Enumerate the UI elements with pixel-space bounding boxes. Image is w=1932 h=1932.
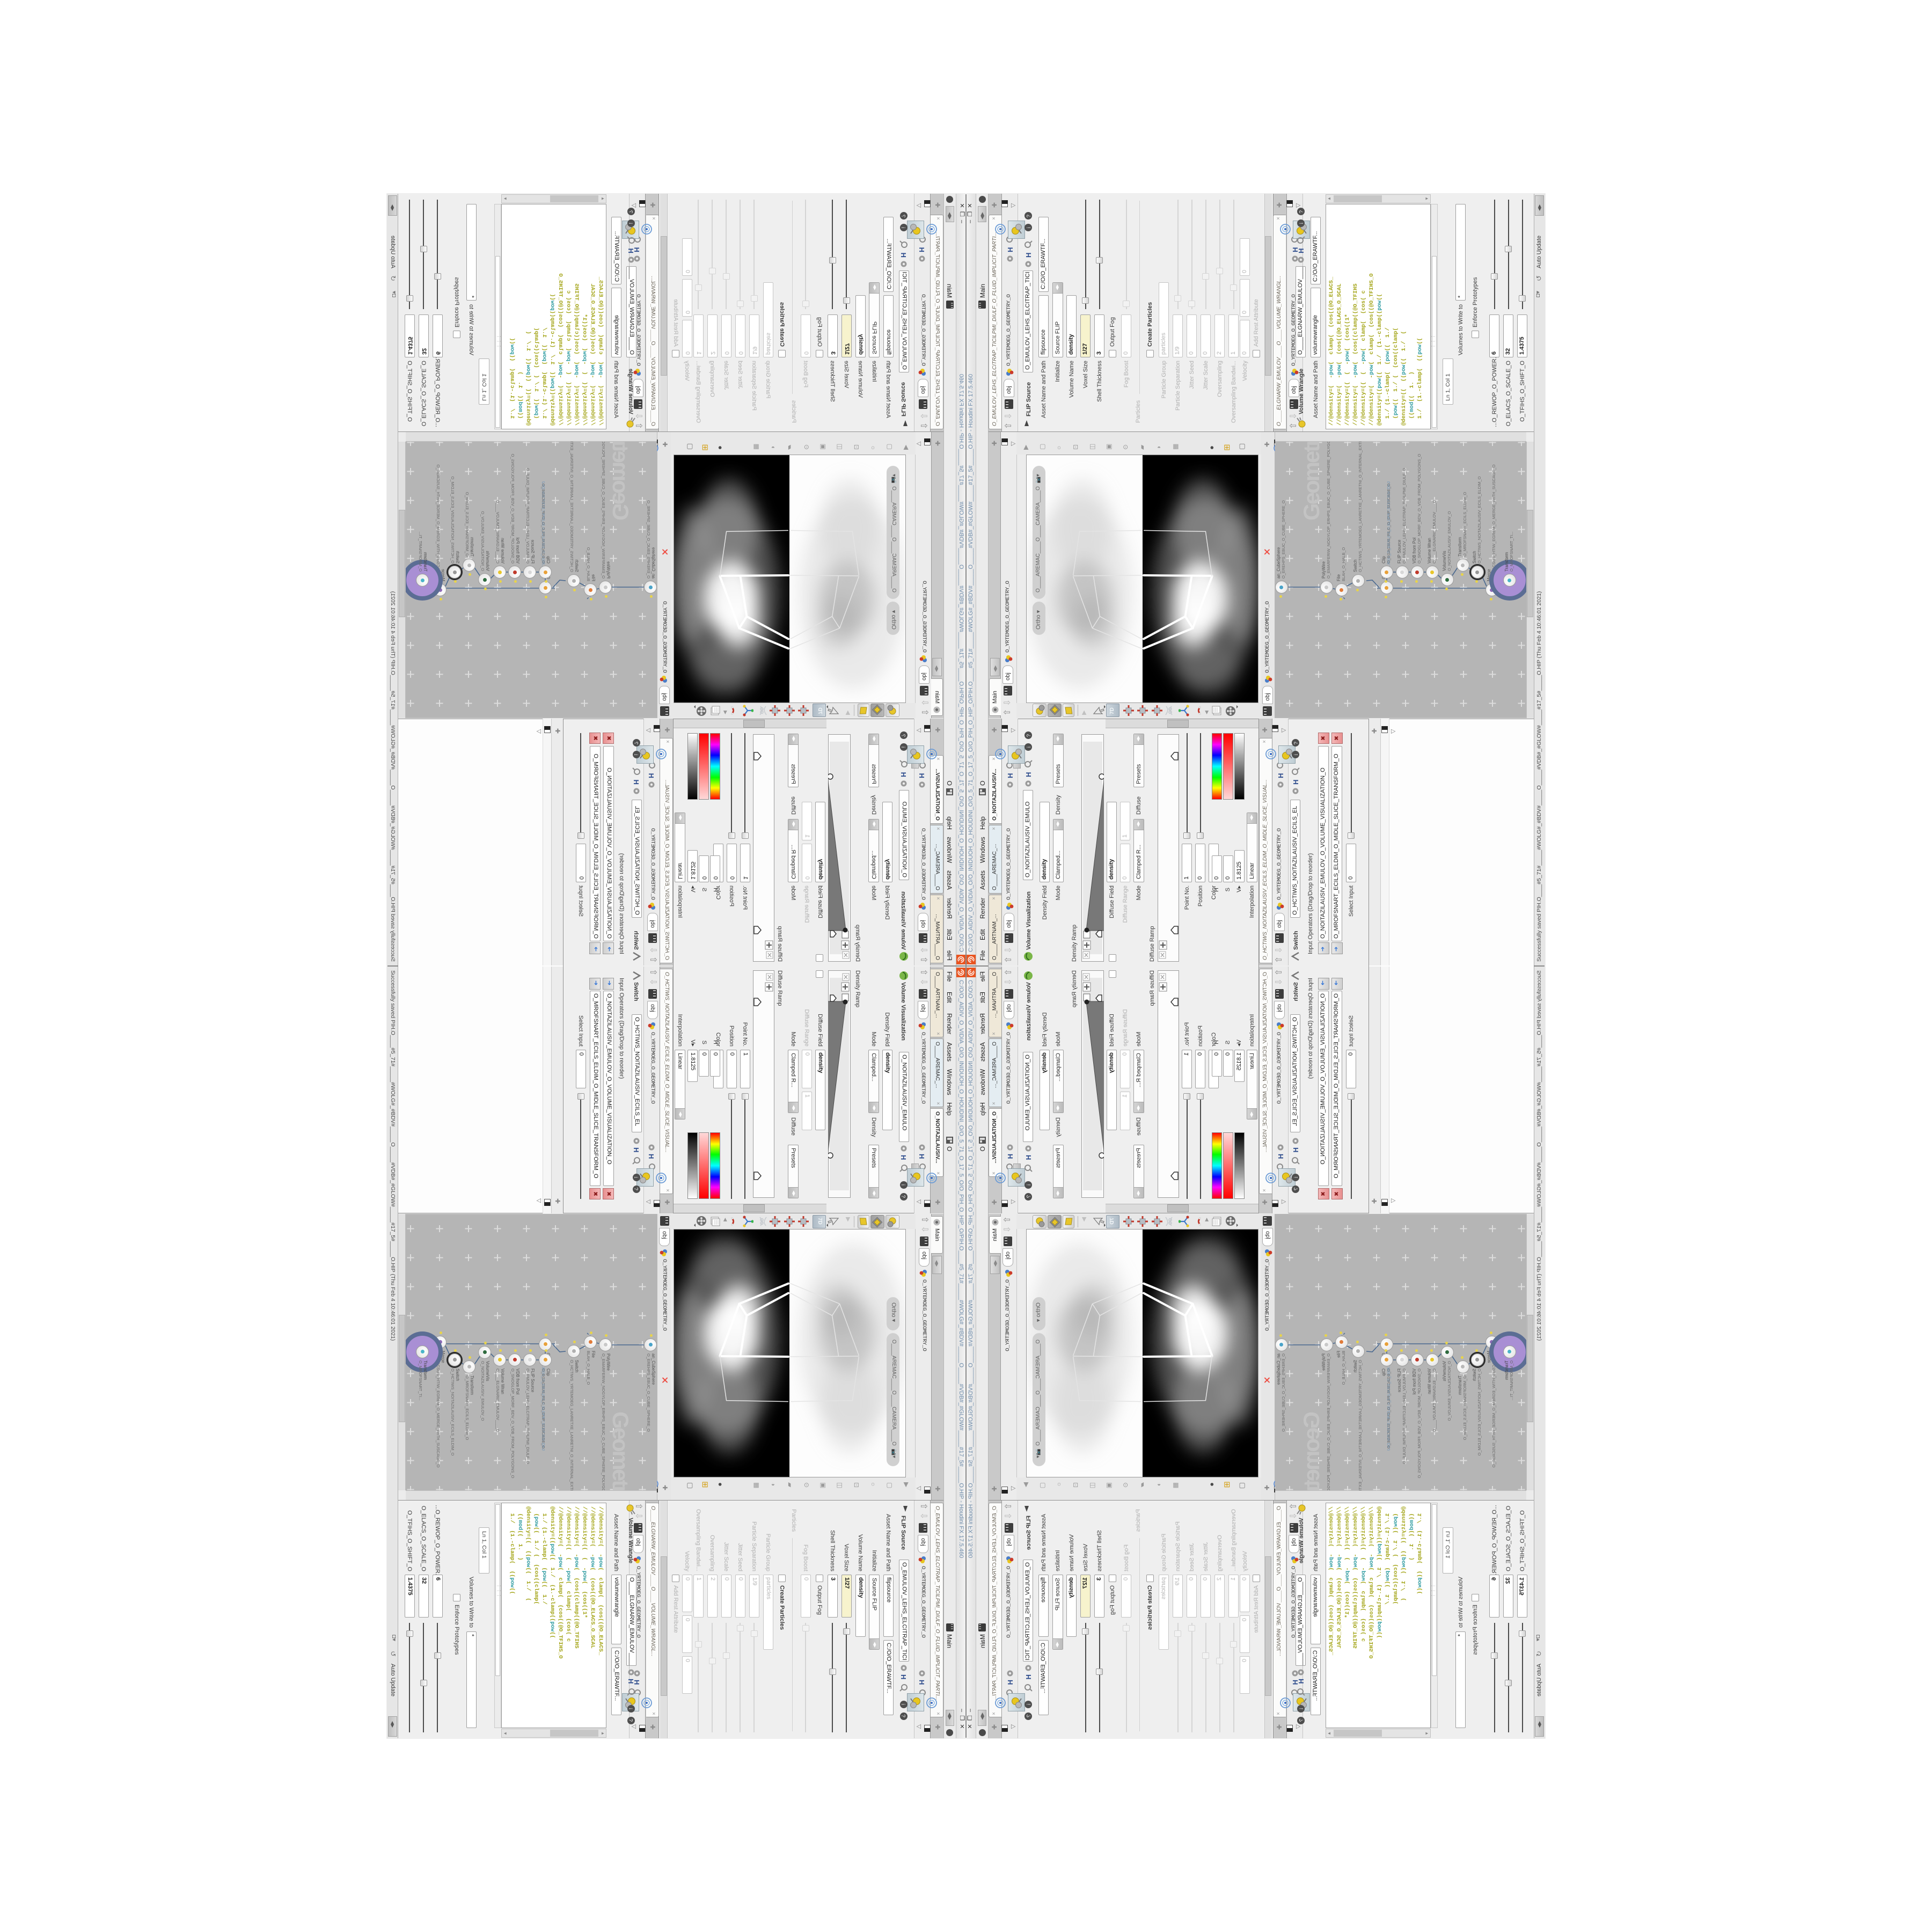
svg-text:i: i: [1026, 227, 1032, 229]
svg-text:H: H: [1024, 1674, 1033, 1679]
svg-text:H: H: [918, 247, 926, 252]
svg-text:i: i: [900, 1184, 906, 1186]
svg-text:i: i: [627, 223, 633, 224]
svg-text:H: H: [899, 253, 908, 258]
svg-text:?: ?: [1026, 734, 1032, 737]
svg-text:H: H: [918, 1154, 926, 1159]
svg-text:H: H: [1297, 1679, 1305, 1684]
svg-text:?: ?: [1299, 1719, 1305, 1722]
svg-text:Geometry: Geometry: [608, 442, 633, 521]
svg-text:?: ?: [1293, 1188, 1299, 1191]
svg-text:H: H: [627, 248, 635, 253]
svg-text:?: ?: [900, 215, 906, 218]
svg-text:?: ?: [627, 210, 633, 214]
svg-text:i: i: [900, 747, 906, 748]
svg-text:?: ?: [900, 734, 906, 737]
svg-text:Geometry: Geometry: [608, 1411, 633, 1490]
svg-text:H: H: [1006, 773, 1014, 778]
svg-text:?: ?: [633, 1188, 639, 1191]
svg-text:H: H: [647, 1154, 655, 1159]
svg-text:H: H: [632, 1147, 640, 1152]
svg-text:H: H: [918, 1680, 926, 1685]
svg-text:i: i: [633, 1177, 639, 1179]
svg-text:H: H: [899, 1155, 908, 1160]
svg-text:H: H: [1297, 248, 1305, 253]
svg-text:H: H: [1277, 1154, 1285, 1159]
svg-text:i: i: [1026, 1704, 1032, 1706]
svg-text:Geometry: Geometry: [1299, 1411, 1324, 1490]
svg-text:?: ?: [633, 742, 639, 745]
svg-text:i: i: [1293, 754, 1299, 756]
svg-text:?: ?: [1026, 215, 1032, 218]
svg-text:H: H: [1277, 773, 1285, 778]
svg-text:H: H: [1024, 772, 1033, 777]
svg-text:Geometry: Geometry: [1299, 442, 1324, 521]
svg-text:H: H: [899, 772, 908, 777]
svg-text:H: H: [1006, 1154, 1014, 1159]
svg-text:?: ?: [1293, 742, 1299, 745]
svg-text:H: H: [1006, 1680, 1014, 1685]
svg-text:i: i: [1293, 1177, 1299, 1179]
svg-text:?: ?: [900, 1715, 906, 1718]
svg-text:H: H: [1024, 253, 1033, 258]
svg-text:?: ?: [900, 1195, 906, 1198]
svg-text:i: i: [1299, 223, 1305, 224]
svg-text:H: H: [632, 780, 640, 785]
svg-text:H: H: [1292, 780, 1300, 785]
svg-text:?: ?: [1026, 1195, 1032, 1198]
svg-text:H: H: [918, 773, 926, 778]
svg-text:i: i: [1026, 1184, 1032, 1186]
svg-text:i: i: [900, 1704, 906, 1706]
svg-text:H: H: [1024, 1155, 1033, 1160]
svg-text:H: H: [1006, 247, 1014, 252]
svg-text:?: ?: [1026, 1715, 1032, 1718]
svg-text:?: ?: [1299, 210, 1305, 214]
svg-text:i: i: [900, 227, 906, 229]
svg-text:H: H: [1292, 1147, 1300, 1152]
svg-text:i: i: [627, 1708, 633, 1710]
svg-text:H: H: [647, 773, 655, 778]
svg-text:i: i: [1299, 1708, 1305, 1710]
svg-text:i: i: [633, 754, 639, 756]
svg-text:H: H: [899, 1674, 908, 1679]
svg-text:?: ?: [627, 1719, 633, 1722]
svg-text:i: i: [1026, 747, 1032, 748]
svg-text:H: H: [627, 1679, 635, 1684]
